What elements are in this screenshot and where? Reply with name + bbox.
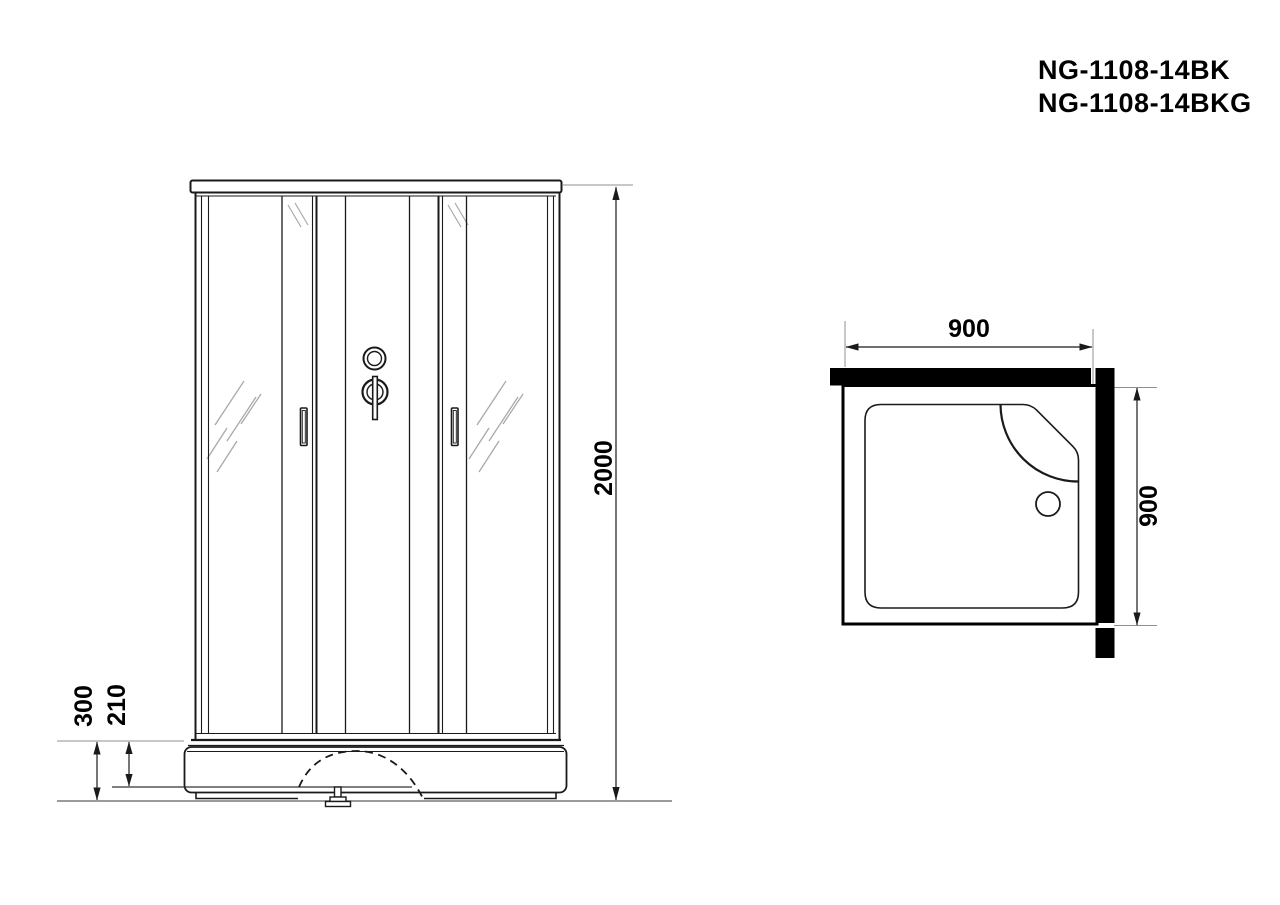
mixer-knob-top: [364, 348, 386, 370]
dim-label-width: 900: [948, 315, 990, 343]
dimension-base-210: 210: [103, 684, 133, 786]
lever-stem: [373, 377, 378, 420]
tray-lip-left: [196, 793, 298, 799]
frame-and-panel-lines: [196, 192, 560, 740]
product-codes: NG-1108-14BK NG-1108-14BKG: [1038, 55, 1252, 118]
dim-label-depth: 900: [1135, 485, 1163, 527]
glass-hatch-left-panel: [207, 381, 261, 472]
dimension-height-2000: 2000: [590, 187, 620, 801]
drawing-page: 2000 300 210: [0, 0, 1280, 905]
dim-label-base-height: 300: [70, 685, 98, 727]
wall-right-lower: [1096, 628, 1115, 658]
front-view: 2000 300 210: [57, 181, 672, 807]
glass-hatch-right-door-top: [448, 203, 468, 227]
top-view: 900 900: [830, 315, 1163, 658]
arrow-down-icon: [612, 787, 619, 801]
bottom-rails: [188, 734, 564, 746]
dim-label-height: 2000: [590, 440, 618, 496]
arrow-up-icon: [125, 742, 132, 755]
arrow-up-icon: [612, 187, 619, 201]
glass-hatch-right-panel: [469, 381, 523, 472]
door-handle-left: [301, 408, 308, 446]
arrow-left-icon: [846, 343, 859, 350]
wall-right: [1096, 368, 1115, 623]
arrow-up-icon: [1133, 388, 1140, 401]
top-cap: [191, 181, 562, 193]
dimension-width-900: 900: [846, 315, 1093, 351]
shower-tray: [112, 747, 567, 807]
shower-cabin-drawing: 2000 300 210: [0, 0, 1280, 905]
arrow-down-icon: [125, 774, 132, 787]
tray-body: [185, 747, 567, 793]
arrow-down-icon: [93, 788, 100, 801]
door-handle-right: [452, 408, 459, 446]
dim-label-base-inner: 210: [103, 684, 131, 726]
dimension-depth-900: 900: [1133, 388, 1163, 626]
plan-tray-outline: [843, 386, 1097, 625]
arrow-down-icon: [1133, 613, 1140, 626]
arrow-up-icon: [93, 742, 100, 755]
mixer-knob-lever: [363, 377, 388, 420]
tray-lip-right: [424, 793, 556, 799]
arrow-right-icon: [1080, 343, 1093, 350]
glass-hatch-left-door-top: [288, 203, 308, 227]
product-code-1: NG-1108-14BK: [1038, 55, 1230, 85]
product-code-2: NG-1108-14BKG: [1038, 88, 1252, 118]
dimension-base-300: 300: [70, 685, 101, 800]
wall-top: [830, 368, 1091, 386]
